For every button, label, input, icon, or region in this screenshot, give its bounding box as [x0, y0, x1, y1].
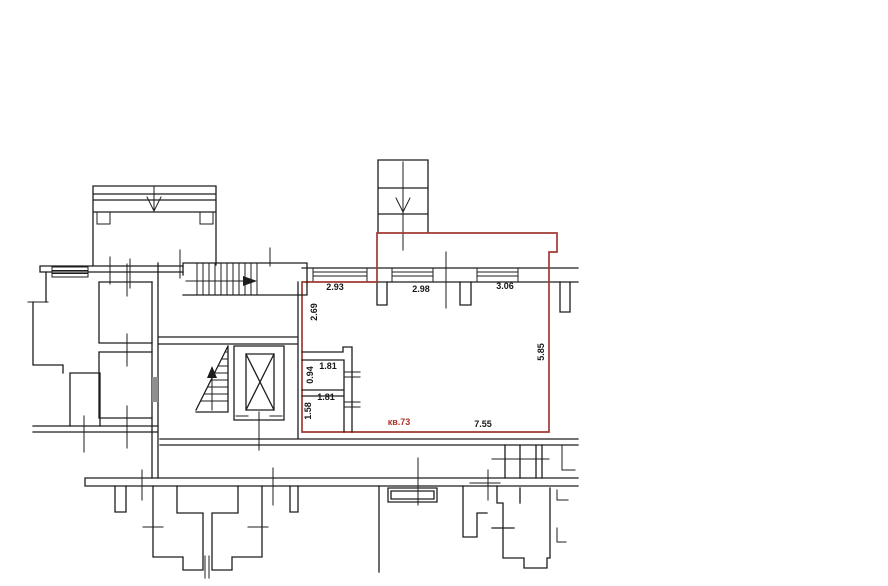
door-leaf	[152, 377, 158, 402]
apartment-73-outline	[302, 233, 557, 432]
window-3-06	[477, 268, 518, 282]
dim-bath-width: 1.81	[317, 392, 335, 402]
room-right-outline	[212, 486, 262, 570]
dim-window-right: 3.06	[496, 281, 514, 291]
dim-wall-left: 2.69	[309, 303, 319, 321]
wall-and-window	[379, 486, 437, 572]
corridor-bottom-wall	[85, 458, 578, 512]
outer-boundary	[33, 272, 100, 426]
balcony-down-arrow-icon	[147, 186, 161, 211]
balcony-piers	[97, 212, 213, 224]
elevator-door-marks	[236, 412, 282, 450]
dim-bath-depth: 1.58	[303, 402, 313, 420]
axis-ticks	[142, 458, 549, 505]
dim-wall-bottom: 7.55	[474, 419, 492, 429]
stair-lower-flight	[196, 346, 228, 412]
window-2-93	[313, 268, 367, 282]
elevator-shaft	[234, 346, 284, 450]
wall-lines	[302, 268, 578, 282]
bottom-center-walls	[379, 486, 437, 572]
left-rooms	[28, 264, 158, 452]
window-2-98	[392, 268, 433, 282]
dimension-labels: 2.93 2.98 3.06 2.69 5.85 7.55 1.81 0.94 …	[303, 281, 546, 429]
balcony-top-left	[93, 186, 216, 265]
dim-window-middle: 2.98	[412, 284, 430, 294]
elevator-outline	[234, 346, 284, 420]
wall-piers	[377, 282, 570, 312]
bottom-right-walls	[463, 445, 575, 568]
axis-ticks	[28, 264, 127, 452]
corridor-top-wall	[40, 248, 270, 288]
room-left-outline	[153, 486, 203, 570]
wall-lines	[85, 478, 578, 486]
shaft-down-arrow-icon	[396, 162, 410, 250]
room-outline	[492, 486, 550, 568]
floorplan-canvas: 2.93 2.98 3.06 2.69 5.85 7.55 1.81 0.94 …	[0, 0, 888, 586]
dim-window-left: 2.93	[326, 282, 344, 292]
garbage-chute-shaft	[378, 160, 428, 250]
axis-ticks	[143, 527, 268, 578]
floorplan-drawing: 2.93 2.98 3.06 2.69 5.85 7.55 1.81 0.94 …	[0, 0, 888, 586]
stair-upper-flight	[183, 263, 307, 295]
dim-wall-right: 5.85	[536, 343, 546, 361]
apartment-boundary	[302, 233, 557, 432]
edge-stubs	[557, 445, 575, 542]
apartment-number-label: кв.73	[388, 417, 411, 427]
dim-wc-width: 1.81	[319, 361, 337, 371]
stair-right-arrowhead-icon	[243, 276, 257, 286]
dim-wc-depth: 0.94	[305, 366, 315, 384]
room-walls	[99, 282, 152, 418]
rooms-below-corridor	[143, 486, 268, 578]
